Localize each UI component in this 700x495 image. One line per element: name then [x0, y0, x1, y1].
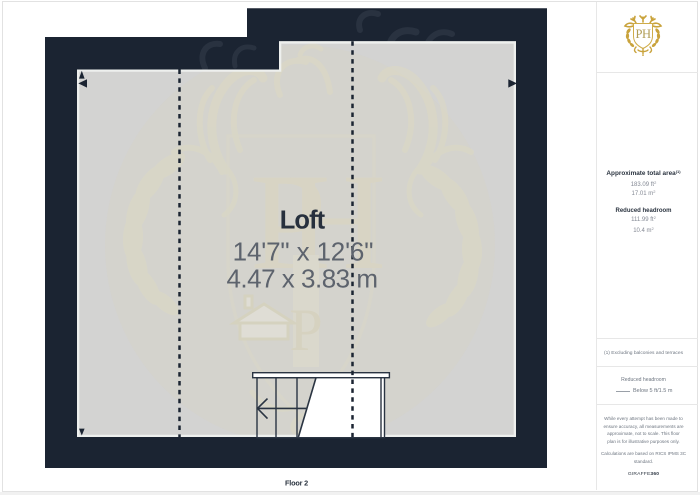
svg-text:PH: PH [636, 27, 651, 41]
svg-text:4.47 x 3.83 m: 4.47 x 3.83 m [226, 264, 377, 294]
svg-text:14'7" x 12'6": 14'7" x 12'6" [233, 237, 374, 267]
svg-text:Loft: Loft [280, 207, 326, 235]
svg-text:P: P [289, 297, 322, 363]
svg-text:Floor 2: Floor 2 [285, 479, 308, 488]
